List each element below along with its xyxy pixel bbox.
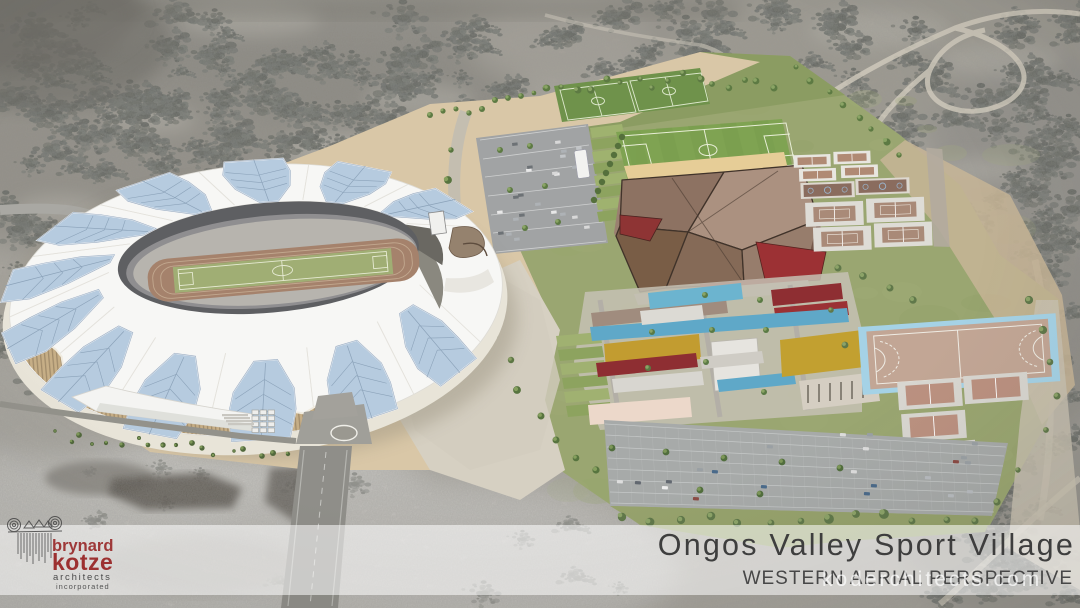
svg-text:koderchitects.com: koderchitects.com — [822, 568, 1042, 591]
svg-text:incorporated: incorporated — [56, 582, 110, 591]
svg-text:Ongos Valley Sport Village: Ongos Valley Sport Village — [658, 528, 1075, 562]
